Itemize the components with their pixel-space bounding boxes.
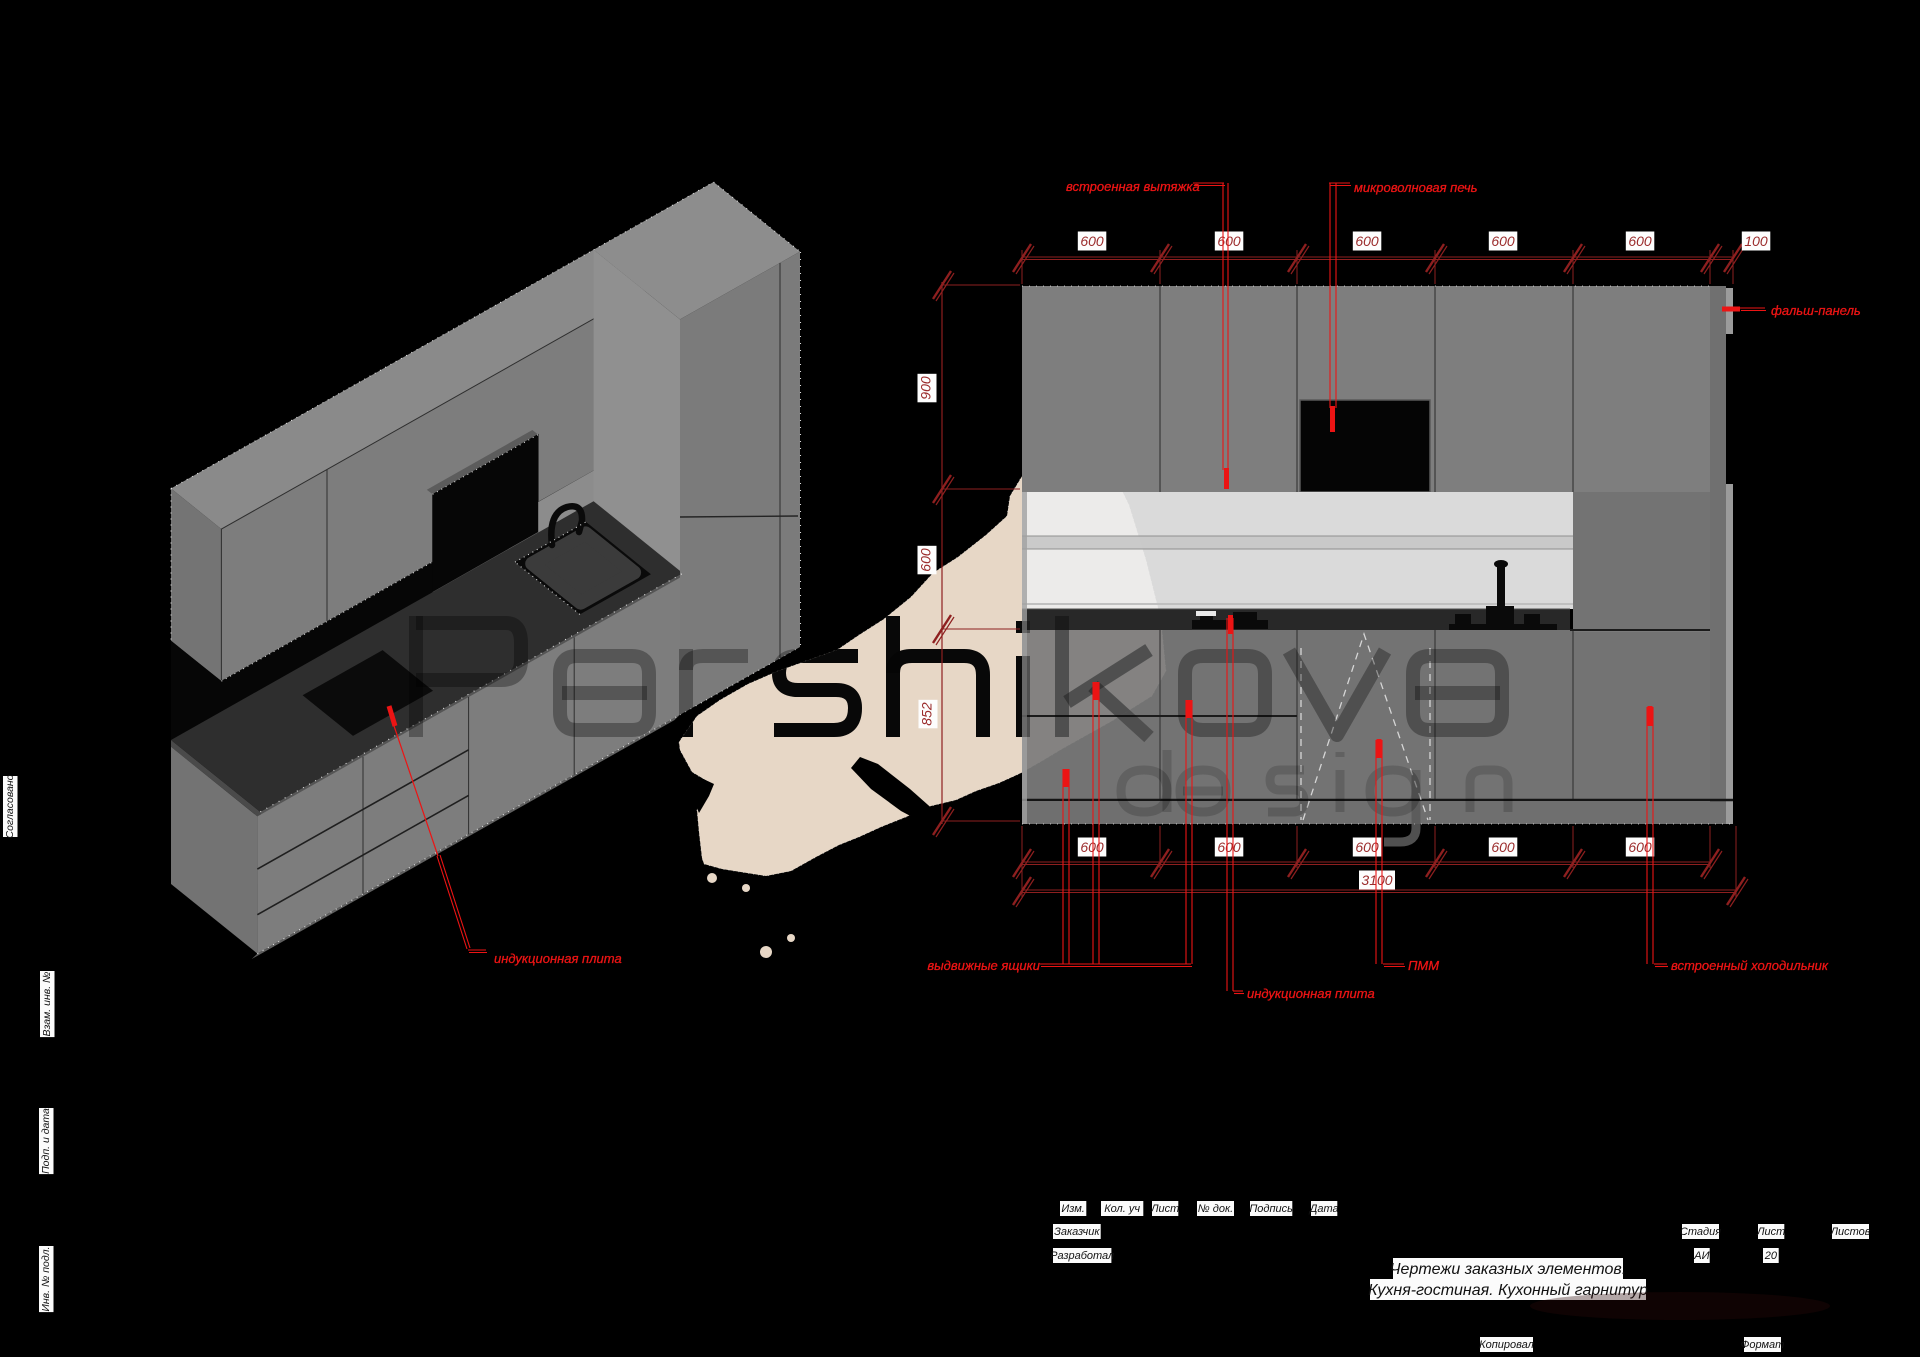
svg-text:600: 600	[1217, 839, 1241, 855]
svg-text:АИ: АИ	[1693, 1250, 1709, 1262]
svg-text:Дата: Дата	[1308, 1203, 1339, 1215]
svg-text:Чертежи заказных элементов.: Чертежи заказных элементов.	[1390, 1261, 1626, 1278]
svg-text:Формат: Формат	[1741, 1339, 1785, 1351]
svg-text:выдвижные ящики: выдвижные ящики	[927, 958, 1040, 973]
svg-text:Разработал: Разработал	[1050, 1250, 1114, 1262]
svg-text:Заказчик: Заказчик	[1054, 1226, 1100, 1238]
svg-text:Изм.: Изм.	[1061, 1203, 1084, 1215]
svg-text:Лист: Лист	[1150, 1203, 1179, 1215]
svg-text:встроенный холодильник: встроенный холодильник	[1671, 958, 1829, 973]
svg-text:Подпись: Подпись	[1249, 1203, 1293, 1215]
svg-text:3100: 3100	[1361, 872, 1392, 888]
svg-text:600: 600	[1080, 839, 1104, 855]
svg-text:встроенная вытяжка: встроенная вытяжка	[1066, 179, 1200, 194]
svg-text:Лист: Лист	[1756, 1226, 1785, 1238]
svg-text:600: 600	[1217, 233, 1241, 249]
svg-text:Листов: Листов	[1829, 1226, 1870, 1238]
svg-text:микроволновая печь: микроволновая печь	[1354, 180, 1478, 195]
svg-text:№ док.: № док.	[1198, 1203, 1233, 1215]
svg-text:600: 600	[1080, 233, 1104, 249]
svg-text:600: 600	[1355, 839, 1379, 855]
svg-text:Кол. уч: Кол. уч	[1104, 1203, 1140, 1215]
svg-text:индукционная плита: индукционная плита	[494, 951, 622, 966]
svg-text:600: 600	[1355, 233, 1379, 249]
svg-text:600: 600	[1628, 233, 1652, 249]
svg-text:Согласовано: Согласовано	[4, 774, 16, 838]
svg-text:Копировал: Копировал	[1479, 1339, 1534, 1351]
svg-text:Инв. № подл.: Инв. № подл.	[40, 1246, 52, 1311]
svg-text:100: 100	[1744, 233, 1768, 249]
svg-text:600: 600	[1491, 233, 1515, 249]
svg-text:852: 852	[919, 702, 935, 726]
svg-text:индукционная плита: индукционная плита	[1247, 986, 1375, 1001]
svg-text:600: 600	[1491, 839, 1515, 855]
svg-text:Стадия: Стадия	[1680, 1226, 1721, 1238]
svg-text:20: 20	[1764, 1250, 1778, 1262]
svg-text:ПММ: ПММ	[1408, 958, 1439, 973]
svg-text:600: 600	[1628, 839, 1652, 855]
svg-text:Взам. инв. №: Взам. инв. №	[41, 972, 53, 1037]
svg-text:600: 600	[918, 548, 934, 572]
svg-text:фальш-панель: фальш-панель	[1771, 303, 1861, 318]
svg-text:Подп. и дата: Подп. и дата	[40, 1108, 52, 1174]
svg-text:900: 900	[918, 376, 934, 400]
